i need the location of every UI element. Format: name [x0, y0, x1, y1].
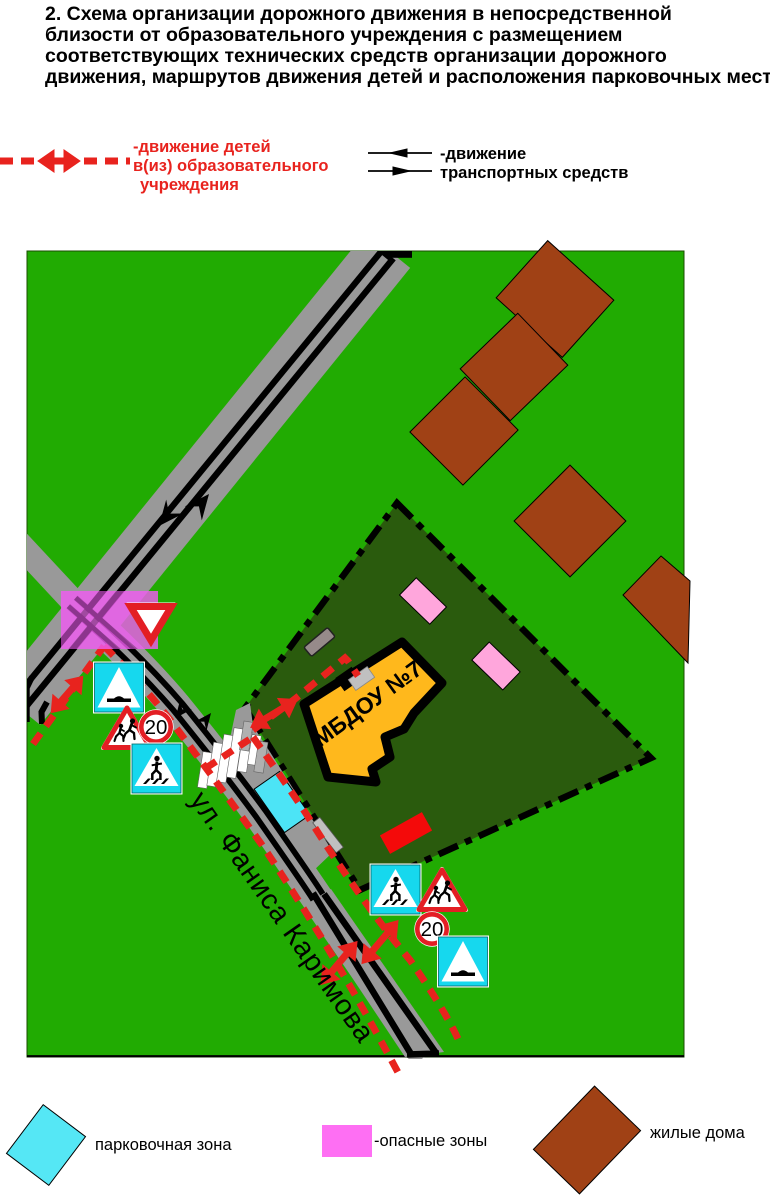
svg-text:учреждения: учреждения [140, 176, 239, 194]
svg-text:-опасные зоны: -опасные зоны [374, 1132, 487, 1150]
svg-text:-движение детей: -движение детей [133, 138, 271, 156]
svg-text:движения, маршрутов движения д: движения, маршрутов движения детей и рас… [45, 66, 770, 88]
svg-text:в(из) образовательного: в(из) образовательного [133, 157, 328, 175]
svg-text:парковочная зона: парковочная зона [95, 1136, 232, 1154]
svg-text:соответствующих технических ср: соответствующих технических средств орга… [45, 45, 667, 67]
svg-text:-движение: -движение [440, 145, 526, 163]
svg-text:транспортных средств: транспортных средств [440, 164, 628, 182]
svg-text:жилые дома: жилые дома [650, 1124, 746, 1142]
svg-text:2. Схема организации дорожного: 2. Схема организации дорожного движения … [45, 3, 672, 25]
svg-text:близости от образовательного у: близости от образовательного учреждения … [45, 24, 622, 46]
